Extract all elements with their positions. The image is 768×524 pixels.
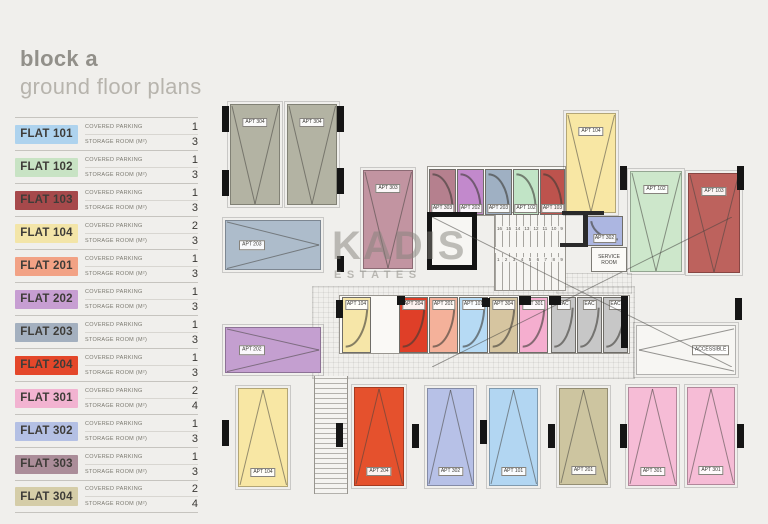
- storage-room-line: STORAGE ROOM (M²)4: [85, 497, 198, 511]
- storage-room-value: 3: [192, 466, 198, 478]
- covered-parking-label: COVERED PARKING: [85, 421, 192, 427]
- covered-parking-value: 1: [192, 286, 198, 298]
- covered-parking-line: COVERED PARKING1: [85, 252, 198, 267]
- flat-chip: FLAT 203: [15, 323, 78, 342]
- legend-values: COVERED PARKING1STORAGE ROOM (M²)3: [85, 186, 198, 215]
- storage-room-line: STORAGE ROOM (M²)3: [85, 432, 198, 446]
- storage-room-label: STORAGE ROOM (M²): [85, 271, 192, 277]
- covered-parking-line: COVERED PARKING1: [85, 153, 198, 168]
- unit-label: APT 104: [578, 127, 603, 137]
- legend-row: FLAT 104COVERED PARKING2STORAGE ROOM (M²…: [15, 216, 198, 249]
- unit-label: APT 203: [239, 240, 264, 250]
- covered-parking-line: COVERED PARKING2: [85, 482, 198, 497]
- column: [620, 166, 627, 190]
- column: [222, 106, 229, 132]
- storage-room-line: STORAGE ROOM (M²)3: [85, 333, 198, 347]
- flat-chip: FLAT 101: [15, 125, 78, 144]
- legend-row: FLAT 303COVERED PARKING1STORAGE ROOM (M²…: [15, 447, 198, 480]
- unit-label: APT 302: [438, 467, 463, 477]
- column: [737, 166, 744, 190]
- parking-stall: APT 201: [559, 388, 608, 485]
- unit-label: APT 102: [643, 185, 668, 195]
- flat-chip: FLAT 202: [15, 290, 78, 309]
- legend-values: COVERED PARKING2STORAGE ROOM (M²)4: [85, 482, 198, 511]
- covered-parking-label: COVERED PARKING: [85, 157, 192, 163]
- storage-room-label: STORAGE ROOM (M²): [85, 469, 192, 475]
- column: [737, 424, 744, 448]
- column: [519, 296, 531, 305]
- unit-label: APT 301: [698, 466, 723, 476]
- parking-stall: APT 101: [489, 388, 538, 486]
- column: [620, 424, 627, 448]
- covered-parking-line: COVERED PARKING1: [85, 285, 198, 300]
- storage-room-line: STORAGE ROOM (M²)3: [85, 168, 198, 182]
- flat-chip: FLAT 102: [15, 158, 78, 177]
- storage-room-value: 4: [192, 400, 198, 412]
- parking-stall: APT 203: [225, 220, 321, 270]
- unit-label: APT 304: [242, 118, 267, 128]
- covered-parking-label: COVERED PARKING: [85, 223, 192, 229]
- legend-row: FLAT 103COVERED PARKING1STORAGE ROOM (M²…: [15, 183, 198, 216]
- legend-values: COVERED PARKING1STORAGE ROOM (M²)3: [85, 351, 198, 380]
- parking-stall: APT 302: [427, 388, 474, 486]
- flat-chip: FLAT 201: [15, 257, 78, 276]
- storage-room-label: STORAGE ROOM (M²): [85, 205, 192, 211]
- storage-room-value: 3: [192, 235, 198, 247]
- storage-room-label: STORAGE ROOM (M²): [85, 337, 192, 343]
- page-title-block: block a: [20, 46, 98, 72]
- covered-parking-label: COVERED PARKING: [85, 256, 192, 262]
- storage-room-line: STORAGE ROOM (M²)3: [85, 267, 198, 281]
- flat-chip: FLAT 103: [15, 191, 78, 210]
- covered-parking-line: COVERED PARKING1: [85, 450, 198, 465]
- storage-room-label: STORAGE ROOM (M²): [85, 238, 192, 244]
- covered-parking-value: 1: [192, 154, 198, 166]
- covered-parking-value: 2: [192, 220, 198, 232]
- covered-parking-line: COVERED PARKING1: [85, 318, 198, 333]
- covered-parking-line: COVERED PARKING2: [85, 219, 198, 234]
- storage-room-line: STORAGE ROOM (M²)3: [85, 135, 198, 149]
- column: [412, 424, 419, 448]
- legend-values: COVERED PARKING2STORAGE ROOM (M²)3: [85, 219, 198, 248]
- storage-room-label: STORAGE ROOM (M²): [85, 304, 192, 310]
- parking-stall: APT 104: [238, 388, 288, 487]
- covered-parking-line: COVERED PARKING1: [85, 186, 198, 201]
- column: [337, 256, 344, 272]
- legend-values: COVERED PARKING1STORAGE ROOM (M²)3: [85, 318, 198, 347]
- covered-parking-label: COVERED PARKING: [85, 322, 192, 328]
- column: [337, 168, 344, 194]
- flat-chip: FLAT 104: [15, 224, 78, 243]
- column: [337, 106, 344, 132]
- storage-room-label: STORAGE ROOM (M²): [85, 501, 192, 507]
- service-room: SERVICE ROOM: [591, 247, 627, 272]
- storage-room: APT 204: [399, 297, 428, 353]
- legend-row: FLAT 203COVERED PARKING1STORAGE ROOM (M²…: [15, 315, 198, 348]
- storage-room-label: STORAGE ROOM (M²): [85, 436, 192, 442]
- covered-parking-label: COVERED PARKING: [85, 289, 192, 295]
- storage-room-value: 3: [192, 202, 198, 214]
- service-room-label: SERVICE ROOM: [597, 254, 621, 266]
- storage-room-value: 3: [192, 433, 198, 445]
- flat-chip: FLAT 302: [15, 422, 78, 441]
- wall-segment: [560, 243, 588, 247]
- parking-stall: APT 301: [628, 387, 677, 486]
- legend-row: FLAT 301COVERED PARKING2STORAGE ROOM (M²…: [15, 381, 198, 414]
- covered-parking-label: COVERED PARKING: [85, 124, 192, 130]
- unit-label: APT 304: [299, 118, 324, 128]
- unit-label: APT 102: [514, 204, 537, 214]
- column: [222, 420, 229, 446]
- parking-stall: APT 304: [230, 104, 280, 205]
- storage-room-line: STORAGE ROOM (M²)3: [85, 366, 198, 380]
- covered-parking-label: COVERED PARKING: [85, 486, 192, 492]
- covered-parking-label: COVERED PARKING: [85, 355, 192, 361]
- elevator: [427, 212, 477, 270]
- covered-parking-value: 1: [192, 187, 198, 199]
- unit-label: APT 201: [571, 466, 596, 476]
- storage-room-label: STORAGE ROOM (M²): [85, 172, 192, 178]
- legend-values: COVERED PARKING1STORAGE ROOM (M²)3: [85, 153, 198, 182]
- unit-label: APT 301: [640, 467, 665, 477]
- unit-label: APT 202: [239, 345, 264, 355]
- legend-row: FLAT 302COVERED PARKING1STORAGE ROOM (M²…: [15, 414, 198, 447]
- column: [621, 296, 628, 348]
- covered-parking-label: COVERED PARKING: [85, 454, 192, 460]
- legend-values: COVERED PARKING1STORAGE ROOM (M²)3: [85, 252, 198, 281]
- storage-room-line: STORAGE ROOM (M²)3: [85, 201, 198, 215]
- column: [549, 296, 561, 305]
- covered-parking-line: COVERED PARKING1: [85, 120, 198, 135]
- unit-label: APT 303: [375, 184, 400, 194]
- flat-chip: FLAT 303: [15, 455, 78, 474]
- covered-parking-value: 1: [192, 319, 198, 331]
- storage-room-line: STORAGE ROOM (M²)3: [85, 300, 198, 314]
- legend-row: FLAT 201COVERED PARKING1STORAGE ROOM (M²…: [15, 249, 198, 282]
- unit-label: APT 204: [402, 300, 425, 310]
- storage-room-label: STORAGE ROOM (M²): [85, 403, 192, 409]
- page-title-plans: ground floor plans: [20, 74, 202, 100]
- storage-room-value: 3: [192, 268, 198, 280]
- unit-label: APT 101: [501, 467, 526, 477]
- unit-label: APT 103: [541, 204, 564, 214]
- legend-values: COVERED PARKING1STORAGE ROOM (M²)3: [85, 450, 198, 479]
- unit-label: APT 203: [487, 204, 510, 214]
- legend-values: COVERED PARKING1STORAGE ROOM (M²)3: [85, 417, 198, 446]
- column: [480, 420, 487, 444]
- legend-values: COVERED PARKING1STORAGE ROOM (M²)3: [85, 285, 198, 314]
- flat-chip: FLAT 204: [15, 356, 78, 375]
- covered-parking-value: 1: [192, 253, 198, 265]
- covered-parking-line: COVERED PARKING1: [85, 417, 198, 432]
- legend-values: COVERED PARKING2STORAGE ROOM (M²)4: [85, 384, 198, 413]
- storage-room-label: STORAGE ROOM (M²): [85, 370, 192, 376]
- storage-room-value: 3: [192, 367, 198, 379]
- column: [548, 424, 555, 448]
- covered-parking-value: 1: [192, 418, 198, 430]
- storage-room-value: 3: [192, 136, 198, 148]
- storage-room-label: STORAGE ROOM (M²): [85, 139, 192, 145]
- column: [336, 300, 343, 318]
- legend-row: FLAT 202COVERED PARKING1STORAGE ROOM (M²…: [15, 282, 198, 315]
- covered-parking-value: 2: [192, 483, 198, 495]
- legend-row: FLAT 101COVERED PARKING1STORAGE ROOM (M²…: [15, 117, 198, 150]
- storage-room-value: 4: [192, 498, 198, 510]
- parking-stall: APT 204: [354, 387, 404, 486]
- covered-parking-value: 2: [192, 385, 198, 397]
- parking-stall: APT 303: [363, 170, 413, 269]
- parking-stall: APT 304: [287, 104, 337, 205]
- covered-parking-label: COVERED PARKING: [85, 388, 192, 394]
- unit-label: APT 204: [366, 467, 391, 477]
- column: [397, 296, 405, 305]
- covered-parking-value: 1: [192, 352, 198, 364]
- legend-row: FLAT 204COVERED PARKING1STORAGE ROOM (M²…: [15, 348, 198, 381]
- storage-room-value: 3: [192, 301, 198, 313]
- parking-mark: [432, 217, 732, 367]
- storage-room: APT 303: [429, 169, 456, 215]
- covered-parking-line: COVERED PARKING2: [85, 384, 198, 399]
- legend-row: FLAT 102COVERED PARKING1STORAGE ROOM (M²…: [15, 150, 198, 183]
- flat-chip: FLAT 304: [15, 487, 78, 506]
- legend-row: FLAT 304COVERED PARKING2STORAGE ROOM (M²…: [15, 480, 198, 513]
- storage-room: APT 202: [457, 169, 484, 215]
- column: [735, 298, 742, 320]
- column: [336, 423, 343, 447]
- flat-chip: FLAT 301: [15, 389, 78, 408]
- covered-parking-line: COVERED PARKING1: [85, 351, 198, 366]
- parking-stall: APT 202: [225, 327, 321, 373]
- unit-label: APT 103: [701, 187, 726, 197]
- covered-parking-value: 1: [192, 121, 198, 133]
- flat-legend: FLAT 101COVERED PARKING1STORAGE ROOM (M²…: [15, 117, 198, 513]
- storage-room: APT 203: [485, 169, 512, 215]
- storage-room-value: 3: [192, 169, 198, 181]
- storage-room-line: STORAGE ROOM (M²)3: [85, 234, 198, 248]
- floor-plan-page: block a ground floor plans FLAT 101COVER…: [0, 0, 768, 524]
- storage-room: APT 102: [513, 169, 539, 215]
- wall-segment: [583, 211, 588, 246]
- unit-label: APT 104: [250, 468, 275, 478]
- parking-stall: APT 104: [566, 113, 616, 213]
- covered-parking-value: 1: [192, 451, 198, 463]
- storage-room-line: STORAGE ROOM (M²)4: [85, 399, 198, 413]
- storage-room-value: 3: [192, 334, 198, 346]
- storage-room: APT 103: [540, 169, 565, 215]
- legend-values: COVERED PARKING1STORAGE ROOM (M²)3: [85, 120, 198, 149]
- column: [222, 170, 229, 196]
- parking-stall: APT 301: [687, 387, 735, 485]
- covered-parking-label: COVERED PARKING: [85, 190, 192, 196]
- column: [482, 298, 490, 307]
- unit-label: APT 104: [345, 300, 368, 310]
- storage-room-line: STORAGE ROOM (M²)3: [85, 465, 198, 479]
- storage-room: APT 104: [342, 297, 371, 353]
